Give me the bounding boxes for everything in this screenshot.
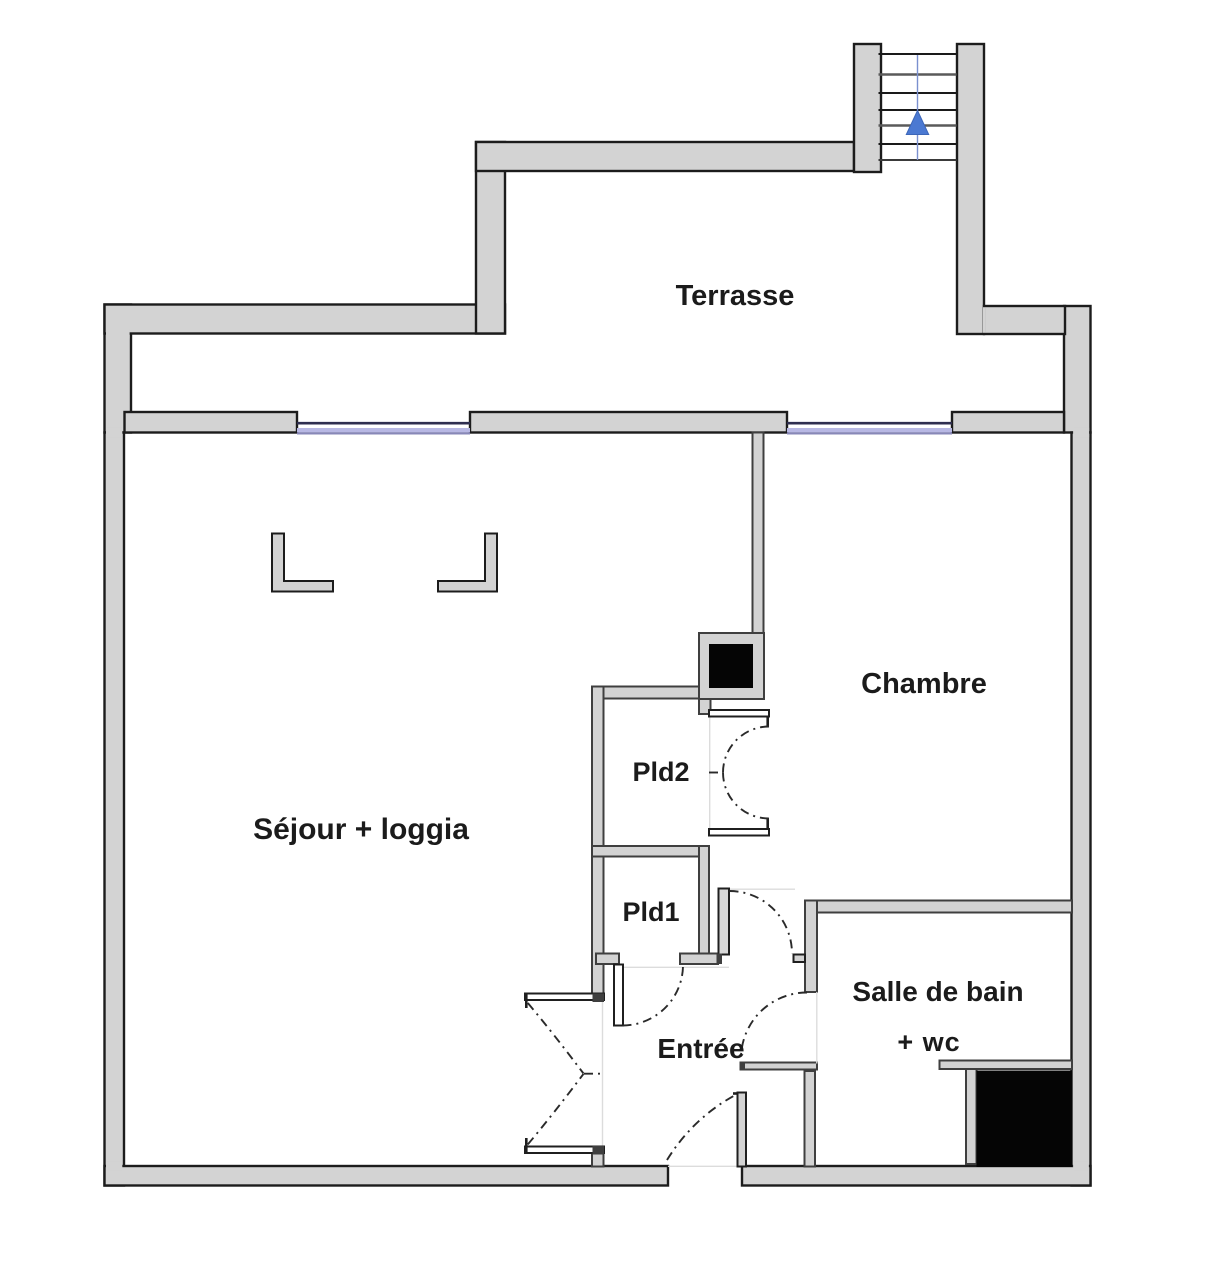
svg-text:+ wc: + wc xyxy=(897,1027,960,1057)
svg-text:Pld1: Pld1 xyxy=(622,897,679,927)
svg-text:Chambre: Chambre xyxy=(861,668,987,700)
svg-text:Salle de bain: Salle de bain xyxy=(852,976,1023,1007)
svg-text:Séjour + loggia: Séjour + loggia xyxy=(253,813,469,846)
svg-text:Terrasse: Terrasse xyxy=(676,280,795,312)
svg-text:Pld2: Pld2 xyxy=(632,757,689,787)
svg-text:Entrée: Entrée xyxy=(657,1033,744,1064)
